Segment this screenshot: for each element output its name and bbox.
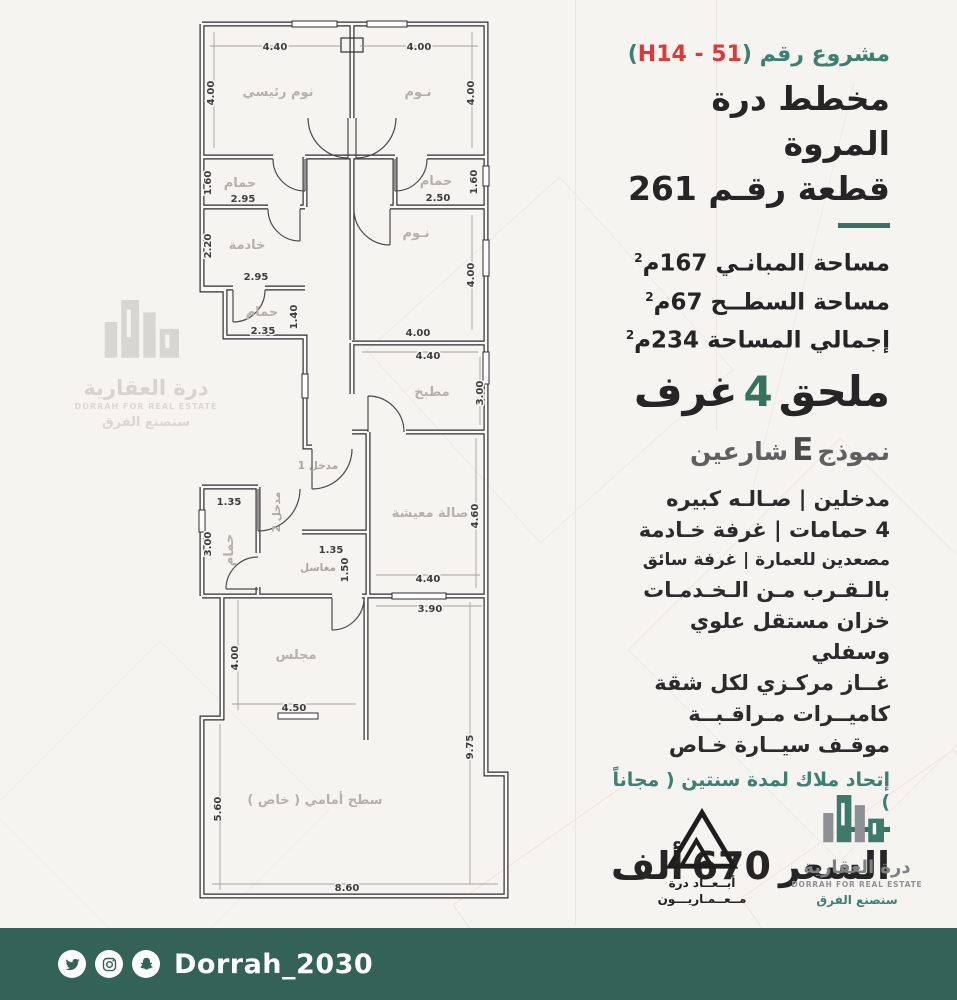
- feature-item: كاميــرات مـراقـبــة: [605, 699, 890, 730]
- room-label-kitchen: مطبخ: [414, 385, 449, 400]
- room-label-bath4: حمام: [222, 534, 237, 567]
- unit-sup: 2: [626, 328, 634, 342]
- dim-terrace-h: 5.60: [213, 797, 224, 822]
- dim-bath3-h: 1.40: [289, 305, 300, 330]
- plan-walls: [202, 24, 506, 896]
- twitter-icon[interactable]: [58, 950, 86, 978]
- room-label-bath1: حمام: [224, 176, 257, 191]
- roof-area-line: مساحة السطــح 67م2: [605, 281, 890, 320]
- total-area-value: 234: [651, 328, 699, 354]
- social-icons: [58, 950, 160, 978]
- dorrah-logo: درة العقارية DORRAH FOR REAL ESTATE سنصن…: [787, 795, 927, 907]
- dim-bath1-h: 1.60: [203, 171, 214, 196]
- abaad-logo: أبــعــاد درة مــعــمـاريـــون: [647, 807, 757, 907]
- unit-sup: 2: [645, 290, 653, 304]
- features-list: مدخلين | صـالـه كبيره 4 حمامات | غرفة خـ…: [605, 484, 890, 761]
- room-label-bed2: نـوم: [404, 85, 431, 100]
- info-panel: مشروع رقم (H14 - 51) مخطط درة المروة قطع…: [605, 40, 890, 888]
- poster: درة العقارية DORRAH FOR REAL ESTATE سنصن…: [0, 0, 957, 1000]
- total-area-label: إجمالي المساحة: [707, 328, 890, 354]
- plan-windows: [199, 21, 489, 719]
- room-label-maid: خادمة: [229, 238, 266, 253]
- room-label-master: نوم رئيسي: [242, 85, 313, 100]
- unit: م: [634, 328, 651, 354]
- room-label-sinks: مغاسل: [300, 562, 336, 574]
- feature-item: خزان مستقل علوي وسفلي: [605, 606, 890, 668]
- dim-bed2-w: 4.00: [407, 42, 432, 53]
- project-code: H14 - 51: [638, 42, 742, 67]
- dim-passage-w: 3.90: [418, 604, 443, 615]
- paren-open: (: [742, 42, 752, 67]
- building-area-value: 167: [659, 251, 707, 277]
- annex-count: 4: [737, 367, 778, 416]
- social-handle[interactable]: Dorrah_2030: [174, 949, 373, 980]
- room-label-bath3: حمام: [246, 305, 279, 320]
- plot-number: قطعة رقـم 261: [605, 166, 890, 211]
- dorrah-tagline: سنصنع الفرق: [787, 893, 927, 907]
- feature-item: 4 حمامات | غرفة خـادمة: [605, 515, 890, 546]
- dim-bath1-w: 2.95: [231, 194, 256, 205]
- dim-bath2-h: 1.60: [469, 170, 480, 195]
- room-label-living: صالة معيشة: [392, 506, 469, 521]
- dim-bed3-w: 4.00: [406, 328, 431, 339]
- dim-master-h: 4.00: [206, 81, 217, 106]
- unit: م: [654, 289, 671, 315]
- dim-maid-h: 2.20: [203, 234, 214, 259]
- dim-majlis-h: 4.00: [230, 646, 241, 671]
- dorrah-buildings-icon: [104, 300, 188, 366]
- unit: م: [643, 251, 660, 277]
- dim-terrace-w: 8.60: [335, 883, 360, 894]
- annex-rooms: غرف: [634, 367, 738, 416]
- bg-pattern-line: [575, 0, 576, 925]
- abaad-name-line1: أبــعــاد درة: [647, 875, 757, 891]
- logos-row: درة العقارية DORRAH FOR REAL ESTATE سنصن…: [647, 795, 927, 907]
- dim-master-w: 4.40: [263, 42, 288, 53]
- model-suffix: شارعين: [690, 437, 788, 466]
- dorrah-name-ar: درة العقارية: [787, 857, 927, 878]
- dim-bed3-h: 4.00: [466, 263, 477, 288]
- snapchat-icon[interactable]: [132, 950, 160, 978]
- annex-word: ملحق: [779, 367, 890, 416]
- feature-item: مصعدين للعمارة | غرفة سائق: [605, 546, 890, 575]
- footer-bar: Dorrah_2030: [0, 928, 957, 1000]
- dim-sinks-h: 1.50: [340, 558, 351, 583]
- feature-item: بالـقـرب مـن الـخـدمـات: [605, 575, 890, 606]
- feature-item: غــاز مركـزي لكل شقة: [605, 668, 890, 699]
- instagram-icon[interactable]: [95, 950, 123, 978]
- dim-living-w: 4.40: [416, 574, 441, 585]
- plan-title: مخطط درة المروة: [605, 76, 890, 166]
- paren-close: ): [628, 42, 638, 67]
- dim-bath2-w: 2.50: [426, 193, 451, 204]
- roof-area-value: 67: [671, 289, 703, 315]
- floor-plan: نوم رئيسي نـوم حمام حمام خادمة حمام نـوم…: [188, 10, 522, 905]
- room-label-terrace: سطح أمامي ( خاص ): [247, 791, 382, 808]
- room-label-entry1: مدخل 1: [298, 460, 338, 472]
- dim-bath4-w: 1.35: [217, 497, 242, 508]
- project-number-line: مشروع رقم (H14 - 51): [605, 40, 890, 70]
- feature-item: موقـف سيــارة خـاص: [605, 730, 890, 761]
- building-area-label: مساحة المبانـي: [715, 251, 890, 277]
- dim-living-h: 4.60: [470, 504, 481, 529]
- annex-line: ملحق4غرف: [605, 366, 890, 418]
- dim-kitchen-h: 3.00: [475, 381, 486, 406]
- dim-majlis-w: 4.50: [282, 703, 307, 714]
- feature-item: مدخلين | صـالـه كبيره: [605, 484, 890, 515]
- dim-bed2-h: 4.00: [466, 81, 477, 106]
- model-prefix: نموذج: [817, 437, 890, 466]
- dim-maid-w: 2.95: [244, 272, 269, 283]
- plan-dimensions: 4.40 4.00 4.00 4.00 1.60 2.95 2.50 1.60 …: [203, 42, 486, 894]
- dim-sinks-w: 1.35: [319, 545, 344, 556]
- roof-area-label: مساحة السطــح: [711, 289, 890, 315]
- room-label-bed3: نـوم: [402, 226, 429, 241]
- total-area-line: إجمالي المساحة 234م2: [605, 319, 890, 358]
- building-area-line: مساحة المبانـي 167م2: [605, 242, 890, 281]
- area-figures: مساحة المبانـي 167م2 مساحة السطــح 67م2 …: [605, 242, 890, 358]
- room-label-bath2: حمام: [420, 174, 453, 189]
- abaad-triangle-icon: [663, 807, 741, 871]
- dim-bath4-h: 3.00: [203, 532, 214, 557]
- room-label-majlis: مجلس: [275, 648, 316, 663]
- room-label-entry2: مدخل 2: [271, 492, 283, 532]
- divider: [838, 223, 890, 228]
- dorrah-name-en: DORRAH FOR REAL ESTATE: [787, 880, 927, 889]
- project-label: مشروع رقم: [760, 42, 890, 67]
- unit-sup: 2: [634, 251, 642, 265]
- model-letter: E: [788, 432, 817, 468]
- dim-bath3-w: 2.35: [251, 326, 276, 337]
- dorrah-buildings-icon: [823, 795, 891, 849]
- dim-kitchen-w: 4.40: [416, 351, 441, 362]
- abaad-name-line2: مــعــمـاريـــون: [647, 891, 757, 907]
- model-line: نموذجEشارعين: [605, 432, 890, 468]
- dim-terrace-side: 9.75: [465, 735, 476, 760]
